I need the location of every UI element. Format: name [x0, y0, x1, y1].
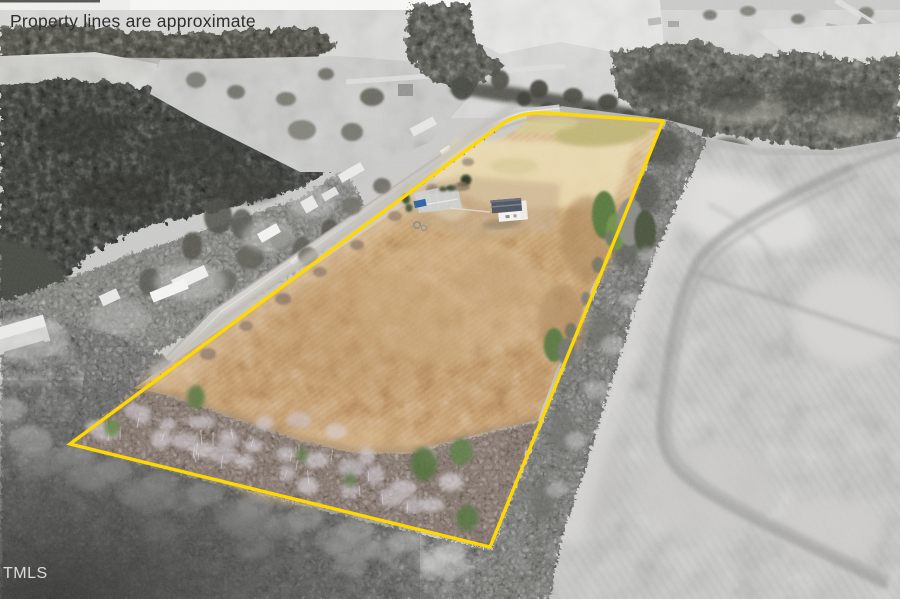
svg-text:TMLS: TMLS [3, 565, 48, 582]
svg-text:Property lines are approximate: Property lines are approximate [10, 11, 256, 31]
